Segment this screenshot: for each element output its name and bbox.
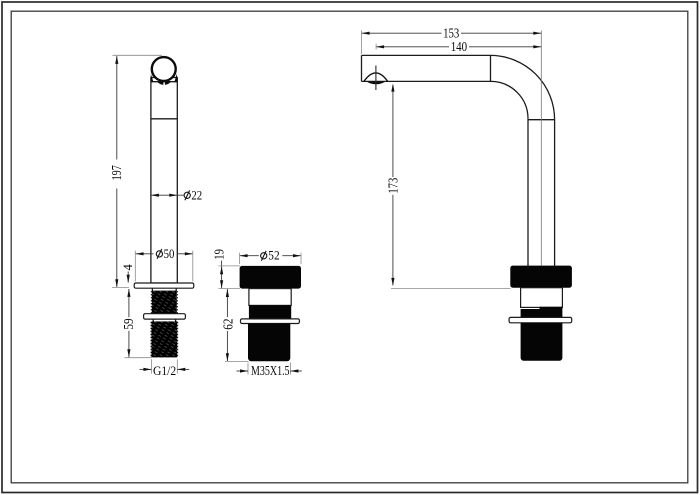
svg-text:19: 19	[212, 249, 227, 260]
svg-text:50: 50	[164, 246, 175, 261]
svg-text:52: 52	[268, 249, 279, 263]
svg-text:173: 173	[385, 178, 400, 194]
svg-text:59: 59	[121, 318, 136, 329]
svg-text:22: 22	[191, 188, 202, 203]
svg-text:G1/2: G1/2	[153, 363, 176, 378]
svg-text:197: 197	[109, 165, 124, 180]
svg-text:4: 4	[121, 264, 135, 271]
svg-text:M35X1.5: M35X1.5	[251, 363, 290, 378]
svg-text:140: 140	[451, 39, 468, 54]
svg-text:62: 62	[221, 319, 236, 330]
